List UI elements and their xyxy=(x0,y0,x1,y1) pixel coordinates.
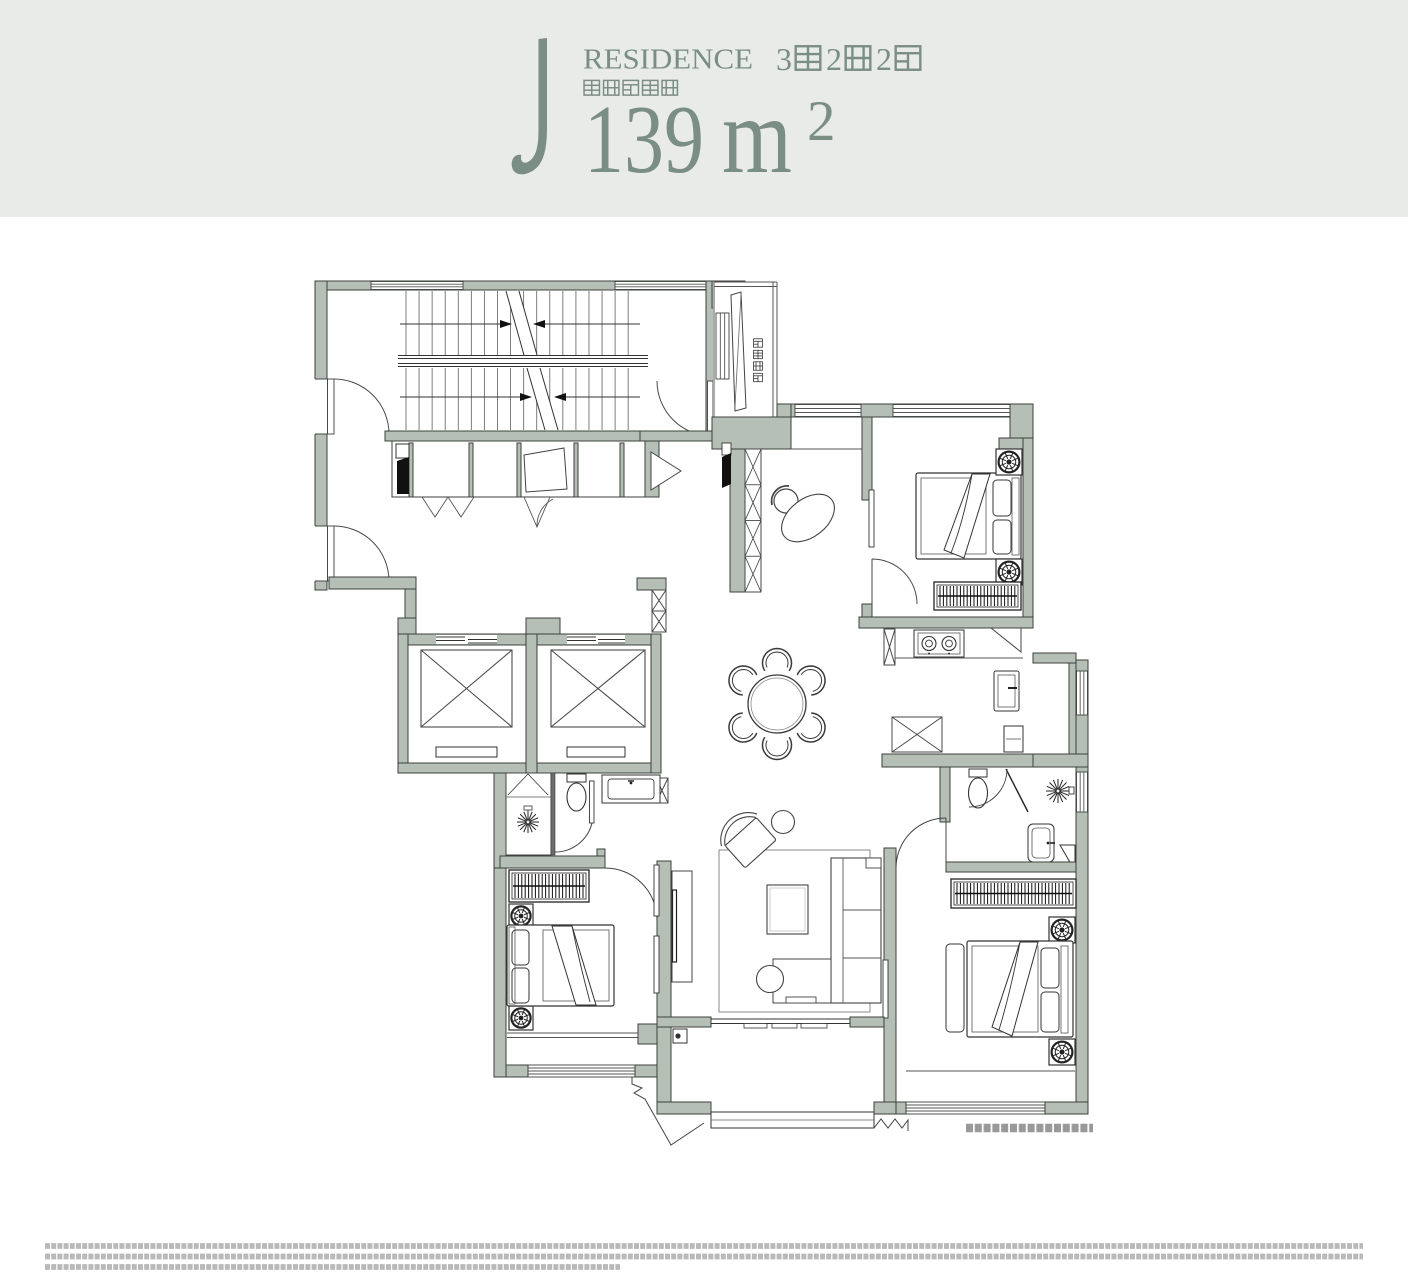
svg-text:2: 2 xyxy=(826,41,842,77)
svg-text:RESIDENCE: RESIDENCE xyxy=(583,44,753,76)
svg-text:2: 2 xyxy=(876,41,892,77)
svg-text:3: 3 xyxy=(776,41,792,77)
svg-text:2: 2 xyxy=(807,90,836,153)
svg-text:139: 139 xyxy=(584,86,704,193)
svg-text:m: m xyxy=(722,77,792,196)
